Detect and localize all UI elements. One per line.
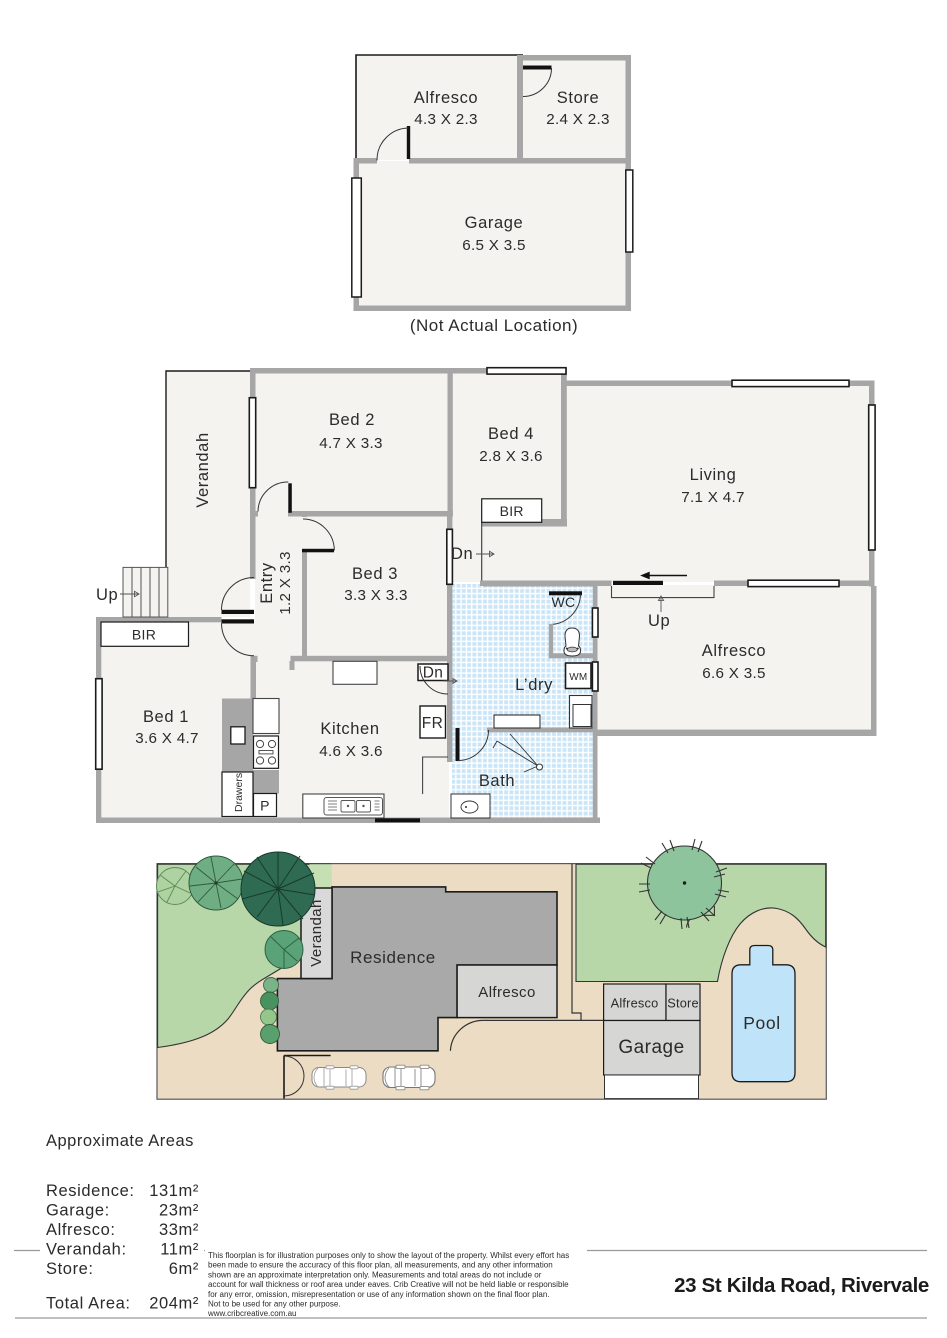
svg-text:Garage: Garage [618,1037,684,1058]
svg-text:FR: FR [422,715,443,732]
svg-text:BIR: BIR [500,503,524,519]
svg-text:Kitchen: Kitchen [320,720,379,738]
svg-text:Alfresco:: Alfresco: [46,1221,116,1239]
svg-text:Verandah:: Verandah: [46,1241,127,1259]
svg-text:Bed 1: Bed 1 [143,708,189,726]
svg-text:Garage:: Garage: [46,1202,110,1220]
svg-text:23 St Kilda Road, Rivervale: 23 St Kilda Road, Rivervale [674,1274,929,1297]
svg-text:4.7 X 3.3: 4.7 X 3.3 [319,435,383,452]
svg-text:2.8 X 3.6: 2.8 X 3.6 [479,448,543,465]
svg-text:204m²: 204m² [149,1295,199,1313]
svg-text:6.6 X 3.5: 6.6 X 3.5 [702,665,766,682]
svg-text:Total Area:: Total Area: [46,1295,131,1313]
svg-text:Living: Living [690,466,737,484]
svg-text:Alfresco: Alfresco [478,984,535,1001]
svg-text:Dn: Dn [423,665,444,682]
svg-text:4.6 X 3.6: 4.6 X 3.6 [319,743,383,760]
svg-text:www.cribcreative.com.au: www.cribcreative.com.au [207,1309,296,1318]
svg-text:Drawers: Drawers [233,773,245,812]
svg-text:6m²: 6m² [169,1260,199,1278]
svg-text:Verandah: Verandah [308,899,325,966]
svg-text:Up: Up [96,586,118,604]
svg-text:WC: WC [552,594,576,610]
svg-text:3.6 X 4.7: 3.6 X 4.7 [135,730,199,747]
svg-text:131m²: 131m² [149,1182,199,1200]
svg-text:Alfresco: Alfresco [611,996,659,1011]
svg-text:Bed 4: Bed 4 [488,425,534,443]
svg-text:Dn: Dn [451,545,473,563]
svg-text:7.1 X 4.7: 7.1 X 4.7 [681,489,745,506]
svg-text:Entry: Entry [258,562,276,604]
svg-text:Alfresco: Alfresco [702,642,766,660]
svg-text:33m²: 33m² [159,1221,199,1239]
svg-text:BIR: BIR [132,627,156,643]
svg-text:(Not Actual Location): (Not Actual Location) [410,316,578,335]
svg-text:WM: WM [569,672,587,683]
svg-text:3.3 X 3.3: 3.3 X 3.3 [344,587,408,604]
svg-text:Store: Store [667,996,699,1011]
svg-text:P: P [260,798,270,814]
svg-text:account for wall thickness or: account for wall thickness or roof area … [208,1280,569,1289]
svg-text:Bath: Bath [479,772,515,790]
svg-text:Up: Up [648,612,670,630]
svg-text:been made to ensure the accura: been made to ensure the accuracy of this… [208,1261,553,1270]
svg-text:shown are an approximate inter: shown are an approximate interpretation … [208,1270,542,1279]
svg-text:Not to be used for any other p: Not to be used for any other purpose. [208,1300,341,1309]
svg-text:Residence: Residence [350,948,436,967]
svg-text:1.2 X 3.3: 1.2 X 3.3 [277,551,294,615]
svg-text:Bed 3: Bed 3 [352,565,398,583]
svg-text:4.3 X 2.3: 4.3 X 2.3 [414,111,478,128]
svg-text:11m²: 11m² [160,1241,199,1259]
svg-text:for any error, omission, misre: for any error, omission, misrepresentati… [208,1290,550,1299]
svg-text:Store: Store [557,89,599,107]
svg-text:2.4 X 2.3: 2.4 X 2.3 [546,111,610,128]
svg-text:L’dry: L’dry [515,676,553,694]
svg-text:Store:: Store: [46,1260,94,1278]
svg-text:Garage: Garage [465,214,524,232]
svg-text:Verandah: Verandah [194,432,212,507]
svg-text:Residence:: Residence: [46,1182,135,1200]
svg-text:Pool: Pool [743,1013,780,1033]
svg-text:Alfresco: Alfresco [414,89,478,107]
svg-text:This floorplan is for illustra: This floorplan is for illustration purpo… [208,1251,569,1260]
svg-text:6.5 X 3.5: 6.5 X 3.5 [462,237,526,254]
svg-text:Approximate Areas: Approximate Areas [46,1132,194,1150]
svg-text:Bed 2: Bed 2 [329,411,375,429]
svg-text:23m²: 23m² [159,1202,199,1220]
